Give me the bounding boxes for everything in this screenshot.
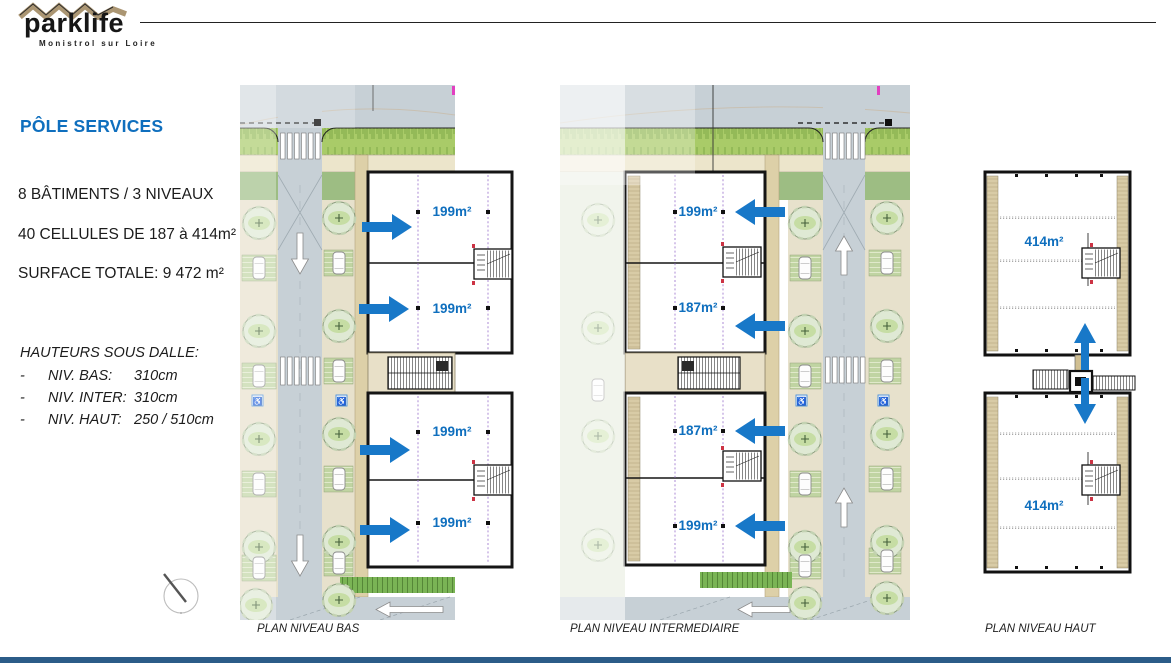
stairwell-icon — [723, 247, 761, 277]
area-label: 199m² — [432, 424, 472, 439]
building-haut-2: 414m² — [985, 393, 1130, 572]
svg-text:♿: ♿ — [797, 396, 807, 406]
caption-plan-haut: PLAN NIVEAU HAUT — [985, 623, 1096, 635]
logo-name: parklife — [24, 8, 124, 39]
height-value: 310cm — [134, 368, 178, 384]
bullet: - — [20, 390, 48, 406]
page-title: PÔLE SERVICES — [20, 116, 163, 137]
building-haut-1: 414m² — [985, 172, 1130, 355]
height-row-haut: - NIV. HAUT: 250 / 510cm — [20, 412, 214, 428]
area-label: 187m² — [678, 300, 718, 315]
bullet: - — [20, 368, 48, 384]
stairwell-icon — [723, 451, 761, 481]
height-row-bas: - NIV. BAS: 310cm — [20, 368, 178, 384]
area-label: 187m² — [678, 423, 718, 438]
heights-title: HAUTEURS SOUS DALLE: — [20, 345, 199, 361]
height-label: NIV. INTER: — [48, 390, 134, 406]
area-label: 199m² — [678, 204, 718, 219]
area-label: 199m² — [432, 515, 472, 530]
bullet: - — [20, 412, 48, 428]
info-buildings: 8 BÂTIMENTS / 3 NIVEAUX — [18, 186, 214, 204]
north-compass-icon — [140, 560, 240, 630]
footer-accent-bar — [0, 657, 1171, 663]
stairwell-icon — [474, 465, 512, 495]
area-label: 199m² — [678, 518, 718, 533]
area-label: 199m² — [432, 301, 472, 316]
caption-plan-bas: PLAN NIVEAU BAS — [257, 623, 359, 635]
stairwell-icon — [1082, 465, 1120, 495]
stairwell-icon — [474, 249, 512, 279]
svg-text:♿: ♿ — [879, 396, 889, 406]
caption-plan-inter: PLAN NIVEAU INTERMEDIAIRE — [570, 623, 739, 635]
info-cells: 40 CELLULES DE 187 à 414m² — [18, 226, 236, 244]
header-rule — [140, 22, 1156, 23]
plan-niveau-haut-drawing: 414m² 414m² — [975, 165, 1140, 585]
area-label: 414m² — [1024, 498, 1064, 513]
height-value: 310cm — [134, 390, 178, 406]
logo-subtitle: Monistrol sur Loire — [39, 39, 157, 48]
area-label: 414m² — [1024, 234, 1064, 249]
height-row-inter: - NIV. INTER: 310cm — [20, 390, 178, 406]
svg-text:♿: ♿ — [337, 396, 347, 406]
slide: parklife Monistrol sur Loire PÔLE SERVIC… — [0, 0, 1171, 663]
height-label: NIV. HAUT: — [48, 412, 134, 428]
info-surface: SURFACE TOTALE: 9 472 m² — [18, 265, 224, 283]
height-label: NIV. BAS: — [48, 368, 134, 384]
buildings-bas: 199m² 199m² 199m² 199m² — [359, 172, 512, 567]
plan-niveau-bas-drawing: ♿ ♿ — [240, 85, 515, 620]
buildings-inter: 199m² 187m² 187m² 199m² — [625, 172, 785, 565]
height-value: 250 / 510cm — [134, 412, 214, 428]
plan-niveau-intermediaire-drawing: ♿ ♿ — [560, 85, 910, 620]
area-label: 199m² — [432, 204, 472, 219]
stairwell-icon — [1082, 248, 1120, 278]
